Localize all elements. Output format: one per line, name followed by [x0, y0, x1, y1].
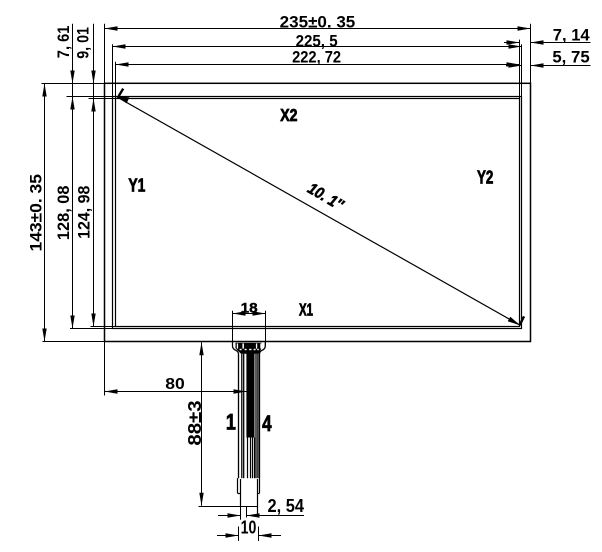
svg-text:7, 14: 7, 14 — [553, 25, 590, 44]
svg-text:X1: X1 — [299, 300, 313, 320]
svg-text:18: 18 — [241, 300, 258, 316]
svg-text:2, 54: 2, 54 — [268, 496, 305, 516]
svg-text:80: 80 — [165, 376, 185, 393]
svg-text:7, 61: 7, 61 — [54, 26, 73, 59]
svg-text:5, 75: 5, 75 — [552, 48, 589, 67]
svg-text:X2: X2 — [280, 105, 297, 125]
svg-text:124, 98: 124, 98 — [75, 186, 94, 239]
svg-text:Y2: Y2 — [477, 168, 493, 188]
svg-text:1: 1 — [226, 409, 236, 434]
svg-text:88±3: 88±3 — [185, 400, 205, 445]
svg-text:143±0. 35: 143±0. 35 — [26, 174, 45, 251]
svg-text:128, 08: 128, 08 — [54, 186, 73, 241]
svg-text:9, 01: 9, 01 — [73, 27, 92, 59]
svg-text:222, 72: 222, 72 — [292, 48, 341, 67]
svg-text:235±0. 35: 235±0. 35 — [280, 13, 356, 32]
svg-text:4: 4 — [262, 411, 272, 436]
svg-text:10: 10 — [241, 518, 257, 538]
svg-text:Y1: Y1 — [128, 175, 145, 195]
